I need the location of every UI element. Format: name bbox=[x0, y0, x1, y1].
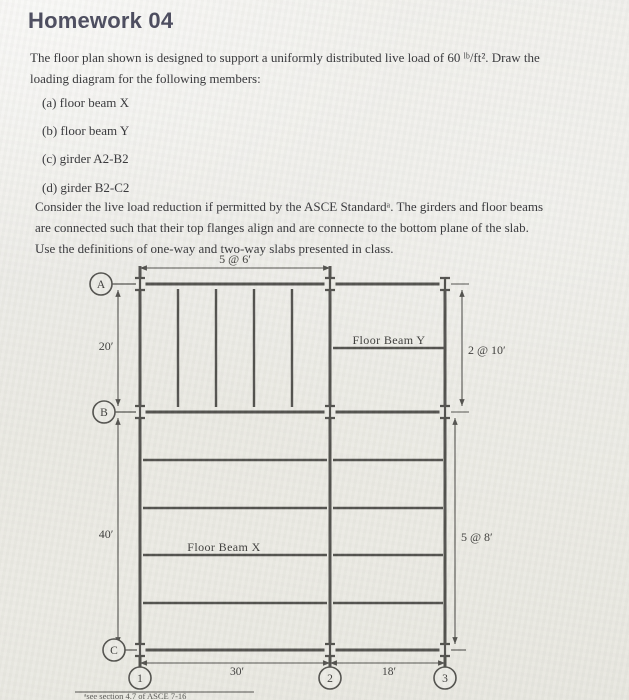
grid-bubble-col-1-label: 1 bbox=[137, 673, 143, 685]
column-symbol-b3 bbox=[440, 405, 451, 419]
dim-label-top: 5 @ 6′ bbox=[219, 252, 251, 266]
homework-page: Homework 04 The floor plan shown is desi… bbox=[0, 0, 629, 700]
extension-ticks bbox=[451, 284, 469, 650]
grid-bubble-row-b: B bbox=[93, 401, 136, 423]
dim-label-5at8: 5 @ 8′ bbox=[461, 530, 493, 544]
column-symbol-b2 bbox=[325, 405, 336, 419]
list-item-c: (c) girder A2-B2 bbox=[42, 151, 129, 167]
grid-bubble-col-1: 1 bbox=[129, 667, 151, 689]
list-item-b: (b) floor beam Y bbox=[42, 123, 129, 139]
note-line-2: are connected such that their top flange… bbox=[35, 220, 529, 236]
dim-label-2at10: 2 @ 10′ bbox=[468, 343, 506, 357]
grid-bubble-row-c: C bbox=[103, 639, 137, 661]
dim-label-30ft: 30′ bbox=[230, 666, 244, 678]
grid-bubble-row-c-label: C bbox=[110, 645, 118, 657]
grid-bubble-row-a: A bbox=[90, 273, 136, 295]
column-symbol-a1 bbox=[135, 277, 146, 291]
column-symbol-a3 bbox=[440, 277, 451, 291]
grid-bubble-col-2: 2 bbox=[319, 667, 341, 689]
dim-label-18ft: 18′ bbox=[382, 666, 396, 678]
column-symbol-b1 bbox=[135, 405, 146, 419]
floor-beams-bottom-right-bay bbox=[333, 460, 443, 603]
grid-bubble-row-a-label: A bbox=[97, 279, 106, 291]
floor-beams-top-bay bbox=[178, 289, 292, 407]
grid-bubbles-rows: A B C bbox=[90, 273, 137, 661]
floor-plan-diagram: 5 @ 6′ 20′ 40′ 2 @ 10′ 5 @ 8′ 30′ 18′ Fl… bbox=[0, 248, 629, 700]
floor-beam-y-label: Floor Beam Y bbox=[352, 333, 425, 347]
intro-line-1: The floor plan shown is designed to supp… bbox=[30, 50, 540, 66]
grid-bubble-row-b-label: B bbox=[100, 407, 108, 419]
page-title: Homework 04 bbox=[28, 8, 173, 34]
floor-beam-x-label: Floor Beam X bbox=[187, 540, 260, 554]
grid-bubble-col-2-label: 2 bbox=[327, 673, 333, 685]
grid-bubble-col-3: 3 bbox=[434, 667, 456, 689]
grid-bubble-col-3-label: 3 bbox=[442, 673, 448, 685]
dim-label-40ft: 40′ bbox=[99, 527, 114, 541]
list-item-a: (a) floor beam X bbox=[42, 95, 129, 111]
grid-bubbles-cols: 1 2 3 bbox=[129, 667, 456, 689]
column-symbol-c2 bbox=[325, 643, 336, 657]
footnote: ᵃsee section 4.7 of ASCE 7-16 bbox=[75, 691, 254, 700]
column-symbol-c3 bbox=[440, 643, 451, 657]
dim-label-20ft: 20′ bbox=[99, 339, 114, 353]
column-symbol-a2 bbox=[325, 277, 336, 291]
intro-line-2: loading diagram for the following member… bbox=[30, 71, 261, 87]
list-item-d: (d) girder B2-C2 bbox=[42, 180, 129, 196]
note-line-1: Consider the live load reduction if perm… bbox=[35, 199, 543, 215]
footnote-text: ᵃsee section 4.7 of ASCE 7-16 bbox=[84, 691, 186, 700]
floor-beams-bottom-left-bay bbox=[143, 460, 327, 603]
